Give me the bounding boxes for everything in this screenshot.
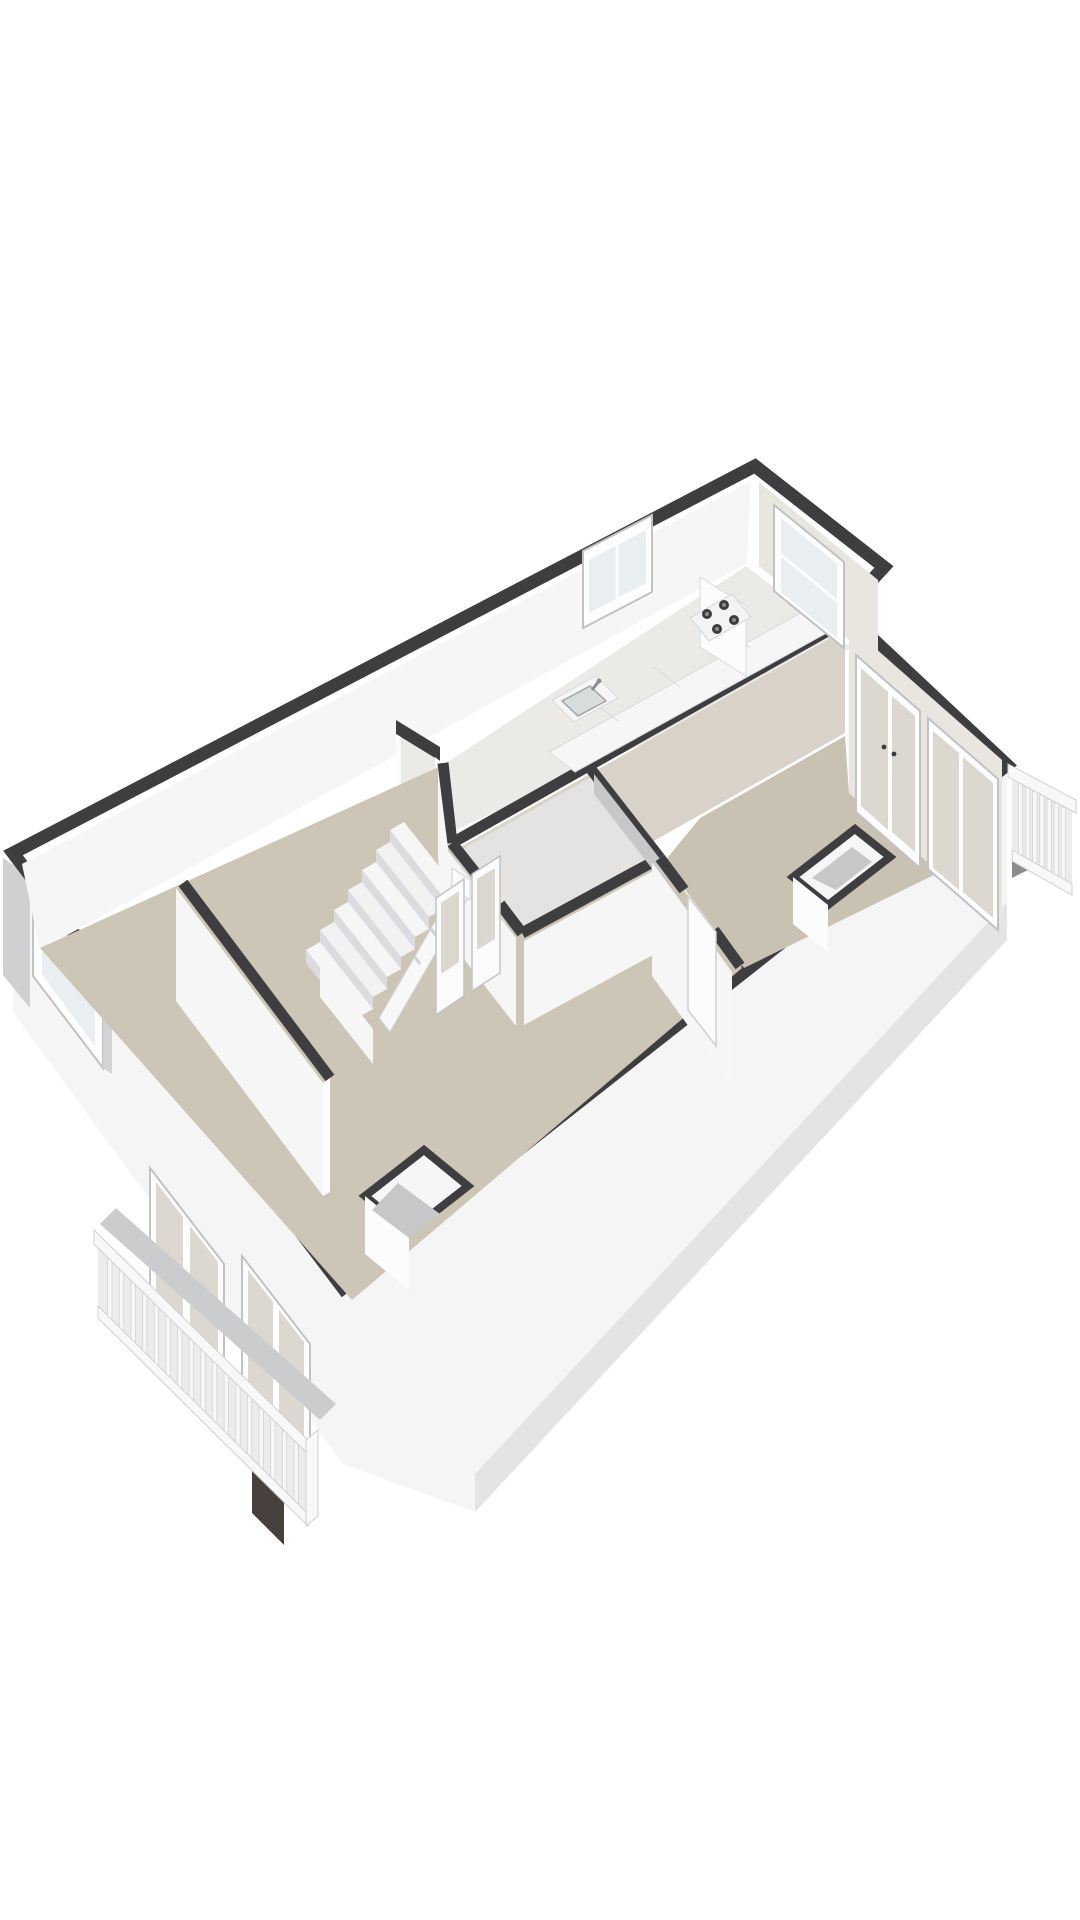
picket (212, 1362, 216, 1424)
picket (259, 1408, 263, 1470)
picket (1040, 795, 1044, 867)
picket (271, 1419, 275, 1481)
picket (282, 1431, 286, 1493)
picket (1054, 803, 1058, 875)
picket (131, 1281, 135, 1343)
burner-ring (732, 618, 736, 622)
picket (247, 1396, 251, 1458)
picket (1061, 807, 1065, 879)
picket (119, 1269, 123, 1331)
picket (143, 1292, 147, 1354)
picket (1026, 787, 1030, 859)
floorplan-3d-render (0, 0, 1080, 1920)
floorplan-stage (0, 0, 1080, 1920)
picket (294, 1442, 298, 1504)
burner-ring (705, 612, 709, 616)
picket (1018, 783, 1022, 855)
picket (154, 1304, 158, 1366)
burner-ring (715, 627, 719, 631)
picket (236, 1385, 240, 1447)
picket (1033, 791, 1037, 863)
hall-wall-endcap (323, 1078, 330, 1196)
picket (189, 1338, 193, 1400)
picket (166, 1315, 170, 1377)
balcony-sw-endpost (306, 1430, 318, 1526)
balcony-northeast (1008, 764, 1076, 895)
picket (178, 1327, 182, 1389)
picket (1047, 799, 1051, 871)
picket (108, 1258, 112, 1320)
burner-ring (722, 603, 726, 607)
picket (201, 1350, 205, 1412)
picket (224, 1373, 228, 1435)
